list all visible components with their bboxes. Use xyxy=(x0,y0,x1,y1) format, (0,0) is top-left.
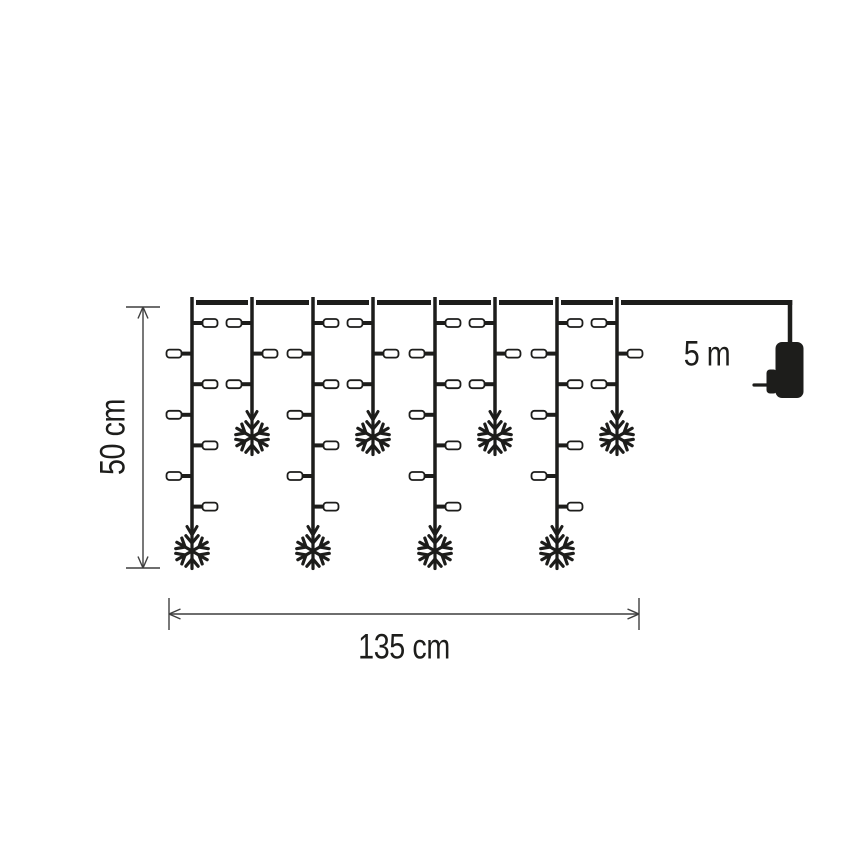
bulb-icon xyxy=(557,319,583,327)
bulb-icon xyxy=(227,319,253,327)
bulb-icon xyxy=(532,411,558,419)
lead-length-label: 5 m xyxy=(684,337,731,372)
bulb-icon xyxy=(192,503,218,511)
width-dimension-label: 135 cm xyxy=(358,630,450,665)
snowflake-icon xyxy=(541,534,574,569)
bulb-icon xyxy=(288,472,314,480)
snowflake-icon xyxy=(419,534,452,569)
bulb-icon xyxy=(470,380,496,388)
light-drop-long xyxy=(288,297,339,569)
bulb-icon xyxy=(167,350,193,358)
bulb-icon xyxy=(557,441,583,449)
bulb-icon xyxy=(532,350,558,358)
bulb-icon xyxy=(435,319,461,327)
bulb-icon xyxy=(435,503,461,511)
bulb-icon xyxy=(592,380,618,388)
bulb-icon xyxy=(192,380,218,388)
bulb-icon xyxy=(470,319,496,327)
bulb-icon xyxy=(192,441,218,449)
snowflake-icon xyxy=(297,534,330,569)
bulb-icon xyxy=(495,350,521,358)
snowflake-icon xyxy=(236,420,269,455)
bulb-icon xyxy=(435,380,461,388)
height-dimension-label: 50 cm xyxy=(96,399,131,475)
light-drop-long xyxy=(410,297,461,569)
bulb-icon xyxy=(410,350,436,358)
bulb-icon xyxy=(348,380,374,388)
bulb-icon xyxy=(410,411,436,419)
snowflake-icon xyxy=(601,420,634,455)
snowflake-icon xyxy=(479,420,512,455)
bulb-icon xyxy=(167,472,193,480)
bulb-icon xyxy=(557,380,583,388)
bulb-icon xyxy=(373,350,399,358)
bulb-icon xyxy=(288,350,314,358)
bulb-icon xyxy=(410,472,436,480)
light-drop-short xyxy=(227,297,278,455)
bulb-icon xyxy=(348,319,374,327)
bulb-icon xyxy=(532,472,558,480)
bulb-icon xyxy=(252,350,278,358)
bulb-icon xyxy=(313,380,339,388)
bulb-icon xyxy=(435,441,461,449)
bulb-icon xyxy=(313,319,339,327)
dimension-width xyxy=(169,598,639,630)
power-plug-icon xyxy=(754,342,804,398)
light-drop-short xyxy=(348,297,399,455)
bulb-icon xyxy=(192,319,218,327)
light-drop-long xyxy=(532,297,583,569)
light-drop-long xyxy=(167,297,218,569)
snowflake-icon xyxy=(357,420,390,455)
bulb-icon xyxy=(288,411,314,419)
bulb-icon xyxy=(617,350,643,358)
bulb-icon xyxy=(167,411,193,419)
light-drop-short xyxy=(592,297,643,455)
bulb-icon xyxy=(313,441,339,449)
bulb-icon xyxy=(313,503,339,511)
snowflake-icon xyxy=(176,534,209,569)
product-dimension-diagram: 50 cm 135 cm 5 m xyxy=(0,0,868,868)
light-drop-short xyxy=(470,297,521,455)
bulb-icon xyxy=(592,319,618,327)
bulb-icon xyxy=(227,380,253,388)
bulb-icon xyxy=(557,503,583,511)
